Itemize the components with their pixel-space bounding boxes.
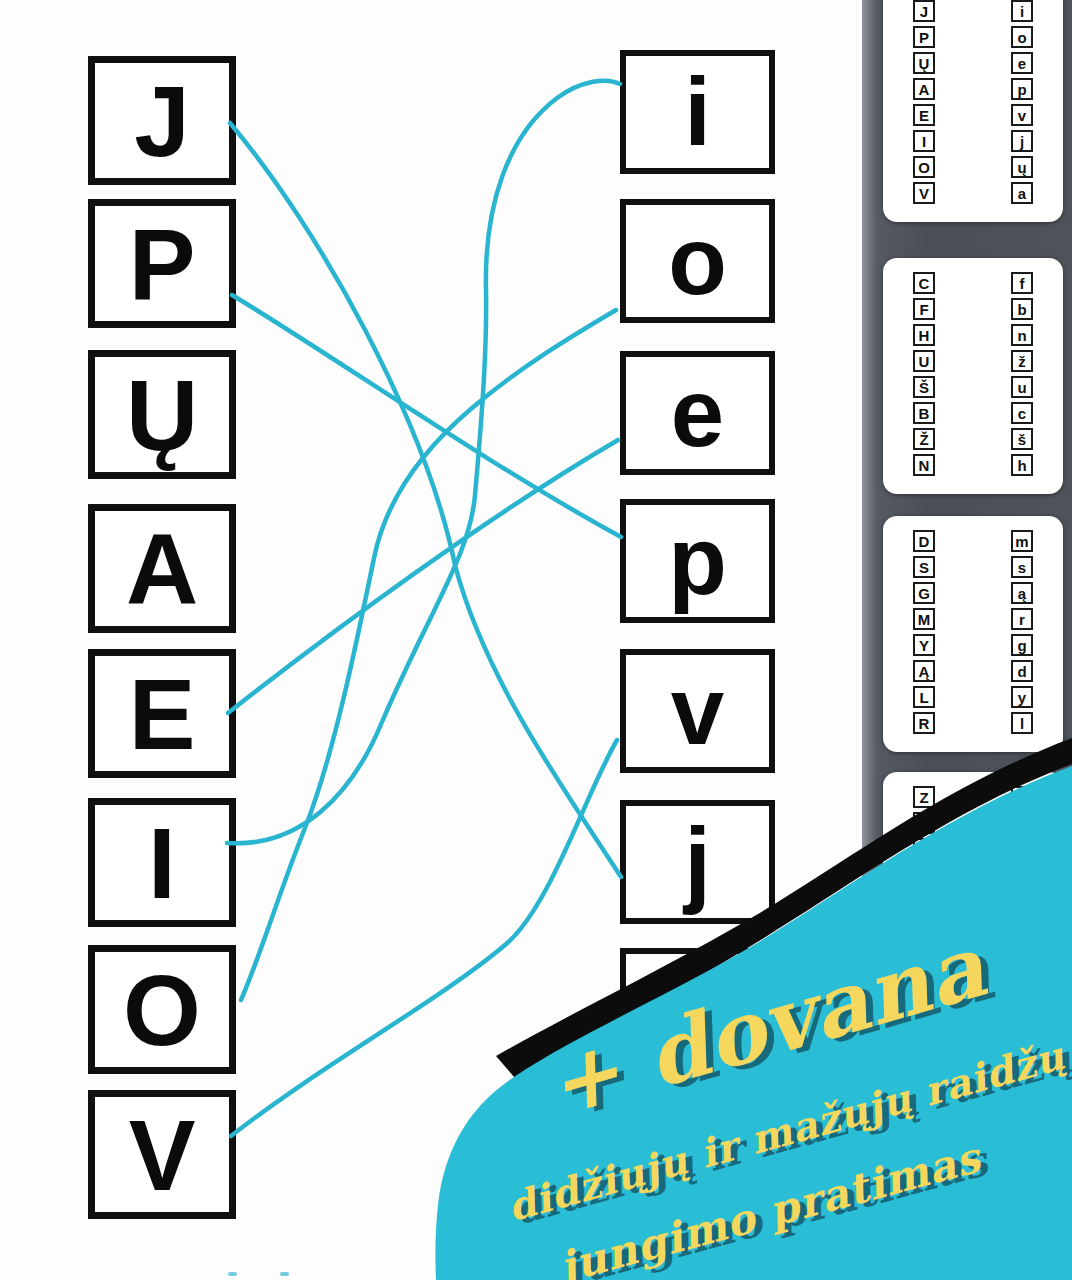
uppercase-letter: A: [126, 519, 198, 619]
thumb-lowercase-box: i: [1011, 0, 1033, 22]
lowercase-letter: j: [684, 814, 711, 910]
thumb-lowercase-box: š: [1011, 428, 1033, 450]
thumbnail-letter-row: Ap: [913, 78, 1033, 100]
thumbnail-letter-row: Nh: [913, 454, 1033, 476]
lowercase-letter: o: [668, 213, 727, 309]
thumbnail-letter-row: Bc: [913, 402, 1033, 424]
thumb-lowercase-box: j: [1011, 130, 1033, 152]
thumb-uppercase-box: H: [913, 324, 935, 346]
thumbnail-letter-row: Ųe: [913, 52, 1033, 74]
thumb-uppercase-box: Ž: [913, 428, 935, 450]
thumb-uppercase-box: S: [913, 556, 935, 578]
worksheet-thumbnail-3: DmSsGąMrYgĄdLyRl: [883, 516, 1063, 752]
thumb-lowercase-box: s: [1011, 556, 1033, 578]
thumb-uppercase-box: C: [913, 272, 935, 294]
thumbnail-letter-row: Hn: [913, 324, 1033, 346]
thumb-uppercase-box: O: [913, 156, 935, 178]
thumbnail-letter-row: Rl: [913, 712, 1033, 734]
thumb-lowercase-box: [1011, 812, 1033, 834]
thumb-lowercase-box: l: [1011, 712, 1033, 734]
thumb-lowercase-box: [1011, 942, 1033, 964]
thumbnail-letter-row: Ly: [913, 686, 1033, 708]
thumb-uppercase-box: A: [913, 78, 935, 100]
thumbnail-letter-row: Oų: [913, 156, 1033, 178]
thumbnail-letter-row: Už: [913, 350, 1033, 372]
worksheet-page: JPŲAEIOVioepvj JiPoŲeApEvIjOųVaCfFbHnUžŠ…: [0, 0, 1072, 1280]
thumbnail-letter-row: Fb: [913, 298, 1033, 320]
thumb-uppercase-box: N: [913, 454, 935, 476]
thumb-lowercase-box: g: [1011, 634, 1033, 656]
thumb-uppercase-box: Š: [913, 376, 935, 398]
thumb-lowercase-box: b: [1011, 298, 1033, 320]
thumb-lowercase-box: y: [1011, 686, 1033, 708]
thumb-lowercase-box: [1011, 916, 1033, 938]
uppercase-letter: E: [129, 664, 196, 764]
thumb-lowercase-box: [1011, 786, 1033, 808]
connection-line-P-p: [232, 295, 621, 537]
stray-mark: [228, 1272, 237, 1276]
thumb-uppercase-box: I: [913, 130, 935, 152]
thumb-lowercase-box: ų: [1011, 156, 1033, 178]
uppercase-letter-box-E: E: [88, 649, 236, 778]
uppercase-letter-box-V: V: [88, 1090, 236, 1219]
connection-line-I-i: [227, 81, 620, 844]
lowercase-letter-box-p: p: [620, 499, 775, 623]
lowercase-letter: i: [684, 64, 711, 160]
thumb-lowercase-box: p: [1011, 78, 1033, 100]
thumbnail-letter-row: Cf: [913, 272, 1033, 294]
lowercase-letter-box-v: v: [620, 649, 775, 773]
thumb-lowercase-box: [1011, 838, 1033, 860]
thumbnail-letter-row: Ij: [913, 130, 1033, 152]
thumb-uppercase-box: [913, 864, 935, 886]
uppercase-letter-box-O: O: [88, 945, 236, 1074]
thumb-uppercase-box: [913, 838, 935, 860]
thumbnail-letter-row: Žš: [913, 428, 1033, 450]
thumb-lowercase-box: e: [1011, 52, 1033, 74]
thumb-lowercase-box: n: [1011, 324, 1033, 346]
thumb-uppercase-box: U: [913, 350, 935, 372]
thumb-uppercase-box: E: [913, 104, 935, 126]
thumbnail-letter-row: [913, 864, 1033, 886]
thumb-lowercase-box: a: [1011, 182, 1033, 204]
thumb-uppercase-box: G: [913, 582, 935, 604]
lowercase-letter-box-i: i: [620, 50, 775, 174]
uppercase-letter: P: [129, 214, 196, 314]
connection-line-J-j: [230, 123, 621, 877]
thumb-lowercase-box: ž: [1011, 350, 1033, 372]
uppercase-letter-box-J: J: [88, 56, 236, 185]
thumb-uppercase-box: R: [913, 712, 935, 734]
uppercase-letter: O: [123, 960, 201, 1060]
worksheet-thumbnail-1: JiPoŲeApEvIjOųVa: [883, 0, 1063, 222]
thumbnail-letter-row: Mr: [913, 608, 1033, 630]
thumbnail-letter-row: Dm: [913, 530, 1033, 552]
thumb-lowercase-box: d: [1011, 660, 1033, 682]
thumbnail-letter-row: Ev: [913, 104, 1033, 126]
thumbnail-letter-row: Šu: [913, 376, 1033, 398]
thumb-lowercase-box: [1011, 968, 1033, 990]
thumb-uppercase-box: V: [913, 182, 935, 204]
thumb-lowercase-box: [1011, 864, 1033, 886]
thumbnail-letter-row: Yg: [913, 634, 1033, 656]
thumbnail-letter-row: Va: [913, 182, 1033, 204]
lowercase-letter-box-j: j: [620, 800, 775, 924]
lowercase-letter: p: [668, 513, 727, 609]
thumb-lowercase-box: o: [1011, 26, 1033, 48]
uppercase-letter: J: [134, 71, 190, 171]
thumbnail-letter-row: Č: [913, 812, 1033, 834]
thumb-lowercase-box: r: [1011, 608, 1033, 630]
thumb-uppercase-box: Ą: [913, 660, 935, 682]
lowercase-letter: e: [671, 365, 724, 461]
lowercase-letter: v: [671, 663, 724, 759]
thumbnail-letter-row: [913, 838, 1033, 860]
thumb-lowercase-box: ą: [1011, 582, 1033, 604]
uppercase-letter-box-A: A: [88, 504, 236, 633]
thumb-lowercase-box: h: [1011, 454, 1033, 476]
thumb-uppercase-box: M: [913, 608, 935, 630]
connection-line-E-e: [228, 440, 618, 713]
uppercase-letter: V: [129, 1105, 196, 1205]
thumb-lowercase-box: v: [1011, 104, 1033, 126]
uppercase-letter-box-I: I: [88, 798, 236, 927]
thumb-lowercase-box: f: [1011, 272, 1033, 294]
thumb-lowercase-box: m: [1011, 530, 1033, 552]
thumbnail-letter-row: Po: [913, 26, 1033, 48]
uppercase-letter-box-Ų: Ų: [88, 350, 236, 479]
lowercase-letter-box-o: o: [620, 199, 775, 323]
thumbnail-letter-row: Ji: [913, 0, 1033, 22]
connection-line-O-o: [241, 310, 616, 1000]
thumb-lowercase-box: c: [1011, 402, 1033, 424]
thumb-uppercase-box: F: [913, 298, 935, 320]
thumb-lowercase-box: [1011, 890, 1033, 912]
thumbnail-letter-row: Gą: [913, 582, 1033, 604]
uppercase-letter: Ų: [126, 365, 198, 465]
thumbnail-letter-row: Ąd: [913, 660, 1033, 682]
thumb-uppercase-box: B: [913, 402, 935, 424]
lowercase-letter-box-e: e: [620, 351, 775, 475]
thumb-uppercase-box: P: [913, 26, 935, 48]
thumb-uppercase-box: Č: [913, 812, 935, 834]
thumb-lowercase-box: u: [1011, 376, 1033, 398]
thumb-uppercase-box: L: [913, 686, 935, 708]
worksheet-thumbnail-2: CfFbHnUžŠuBcŽšNh: [883, 258, 1063, 494]
uppercase-letter: I: [148, 813, 176, 913]
thumb-uppercase-box: [913, 890, 935, 912]
thumb-uppercase-box: D: [913, 530, 935, 552]
thumbnail-letter-row: Ss: [913, 556, 1033, 578]
uppercase-letter-box-P: P: [88, 199, 236, 328]
stray-mark: [280, 1272, 289, 1276]
thumbnail-letter-row: [913, 890, 1033, 912]
thumbnail-letter-row: Z: [913, 786, 1033, 808]
thumb-uppercase-box: J: [913, 0, 935, 22]
thumb-uppercase-box: Y: [913, 634, 935, 656]
thumb-uppercase-box: Ų: [913, 52, 935, 74]
thumb-uppercase-box: Z: [913, 786, 935, 808]
